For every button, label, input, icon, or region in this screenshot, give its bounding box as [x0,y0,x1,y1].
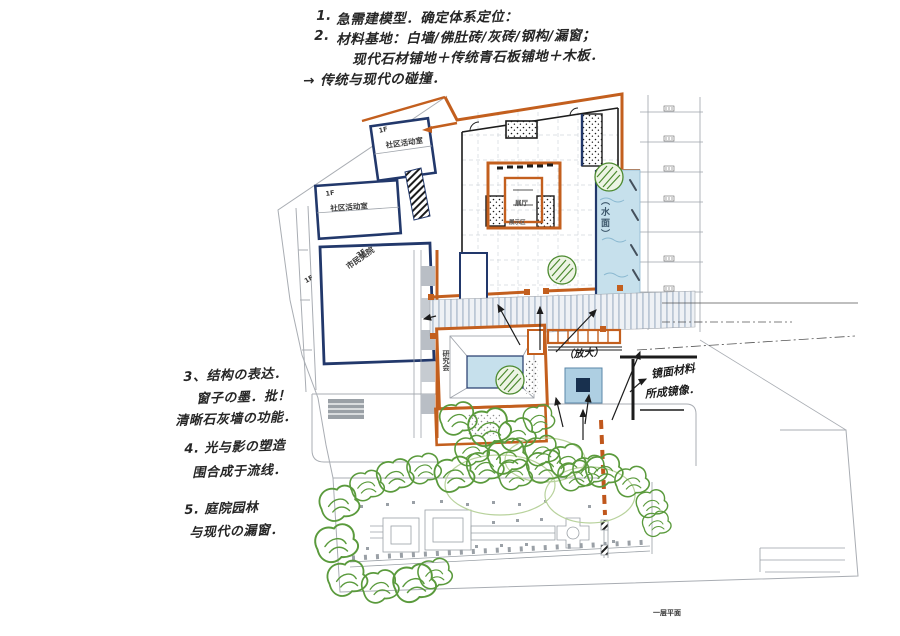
note-arrow-text: → 传统与现代の碰撞． [303,67,446,89]
plaza-stairs [328,399,364,419]
enlarge-note-label: （放大） [563,343,604,361]
exhibition-hall-label: 展厅 [515,197,528,207]
note-4-line1: 4. 光与影の塑造 [184,434,286,457]
note-3-line2: 窗子の墨．批！ [196,385,291,407]
note-1-number: 1. [316,8,332,24]
temple-complex [350,482,845,572]
stipple-room-b [582,114,602,166]
research-pavilion [437,325,548,409]
museum-building [320,243,434,364]
plan-caption: 一层平面 [653,608,681,618]
note-5-line1: 5. 庭院园林 [184,496,259,518]
note-2-number: 2. [314,28,330,44]
hatched-link-wall [405,168,430,220]
note-3-line1: 3、结构の表达． [183,362,288,385]
research-room-label: 研究会 [441,350,451,396]
exhibition-area-label: 展示区 [509,218,526,226]
sketch-page: 1. 急需建模型．确定体系定位： 2. 材料基地：白墙/佛肚砖/灰砖/钢构/漏窗… [0,0,900,636]
floor-1f-label-b: 1F [325,189,335,198]
mirror-pool [565,368,602,403]
dimension-ticks [664,106,674,291]
stipple-room-a [506,121,537,138]
water-label: （水面） [598,196,611,282]
note-4-line2: 围合成于流线． [192,459,287,481]
note-5-line2: 与现代の漏窗． [189,519,284,541]
site-plan-drawing [0,0,900,636]
